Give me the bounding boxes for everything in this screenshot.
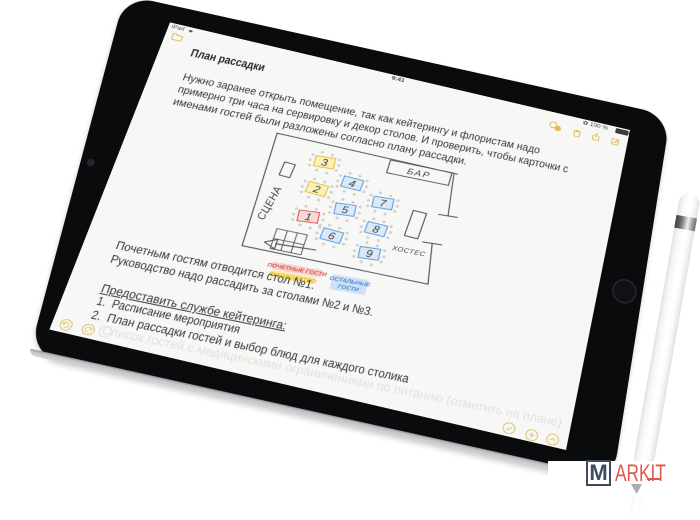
svg-text:ХОСТЕС: ХОСТЕС	[390, 245, 426, 259]
svg-text:БАР: БАР	[406, 166, 432, 180]
